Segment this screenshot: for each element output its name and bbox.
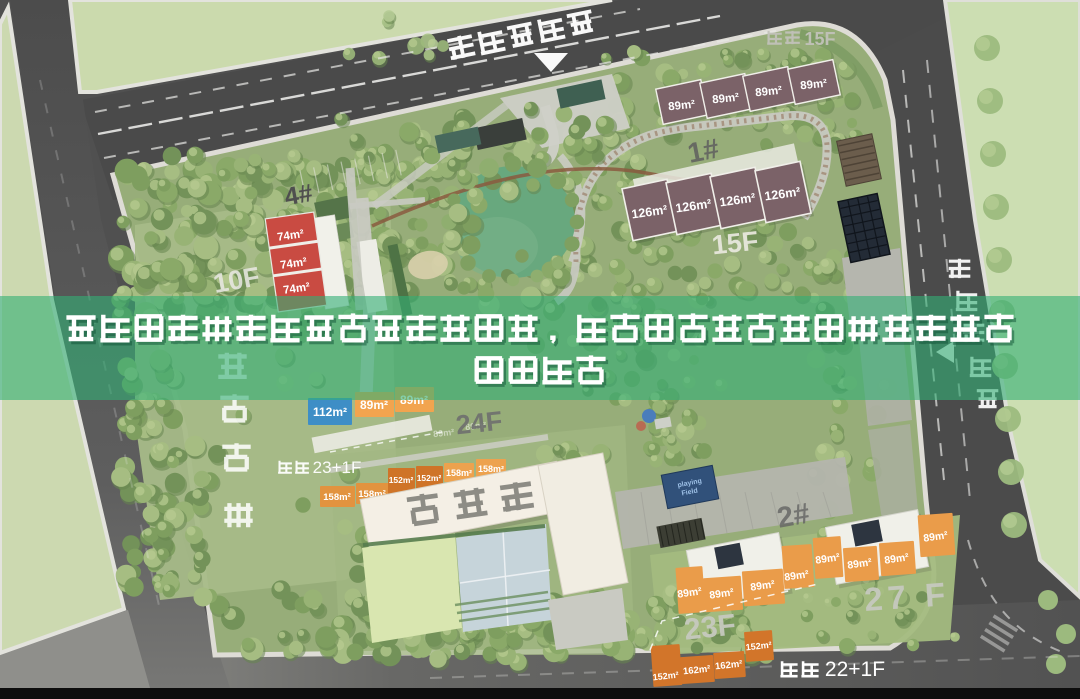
svg-text:4#: 4#	[282, 179, 314, 211]
svg-text:27 F: 27 F	[863, 575, 951, 618]
svg-text:24F: 24F	[454, 406, 503, 441]
svg-text:89m²: 89m²	[360, 398, 388, 412]
svg-text:2#: 2#	[775, 498, 812, 535]
svg-text:15F: 15F	[710, 226, 759, 261]
svg-text:23+1F: 23+1F	[313, 458, 362, 477]
svg-text:112m²: 112m²	[313, 405, 347, 419]
svg-text:22+1F: 22+1F	[825, 658, 885, 681]
svg-text:158m²: 158m²	[323, 492, 350, 503]
svg-text:152m²: 152m²	[389, 475, 414, 485]
svg-text:15F: 15F	[804, 29, 835, 49]
svg-text:152m²: 152m²	[417, 473, 442, 483]
svg-text:1#: 1#	[685, 132, 722, 168]
svg-text:158m²: 158m²	[446, 468, 472, 478]
